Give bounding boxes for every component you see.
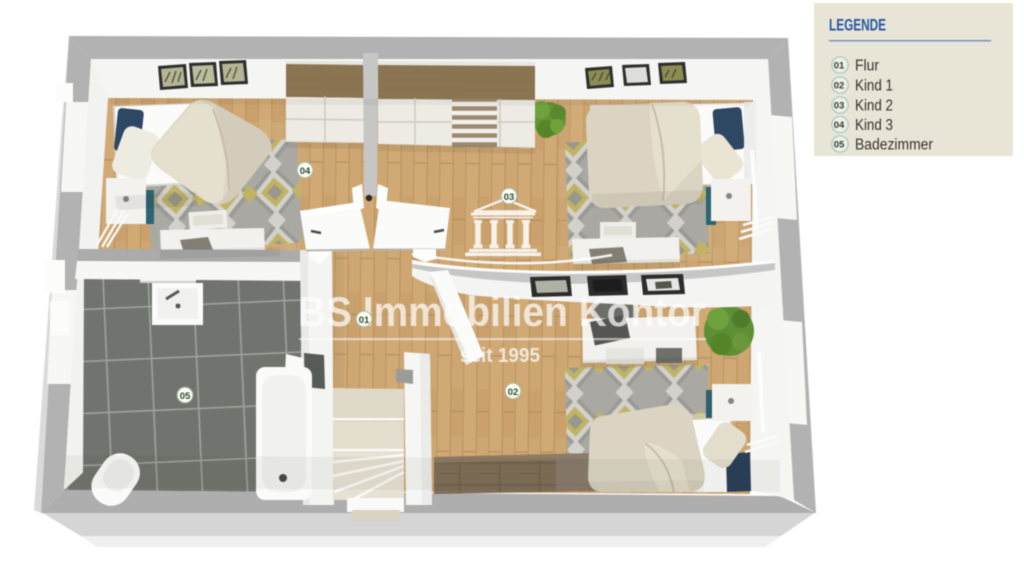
svg-text:05: 05 xyxy=(834,140,845,151)
svg-text:BS Immobilien Kontor: BS Immobilien Kontor xyxy=(298,288,706,335)
svg-text:Kind 3: Kind 3 xyxy=(855,117,893,134)
svg-text:Badezimmer: Badezimmer xyxy=(855,137,933,154)
svg-text:03: 03 xyxy=(504,192,515,203)
svg-text:02: 02 xyxy=(834,81,845,92)
svg-text:03: 03 xyxy=(834,101,845,112)
svg-text:01: 01 xyxy=(834,61,845,72)
svg-text:01: 01 xyxy=(359,315,370,326)
svg-text:Flur: Flur xyxy=(855,58,879,75)
svg-text:Kind 2: Kind 2 xyxy=(855,98,893,115)
svg-text:02: 02 xyxy=(508,387,519,398)
svg-text:04: 04 xyxy=(834,120,845,131)
svg-text:Kind 1: Kind 1 xyxy=(855,78,893,95)
svg-text:seit 1995: seit 1995 xyxy=(460,345,540,367)
svg-text:05: 05 xyxy=(180,391,191,402)
svg-text:LEGENDE: LEGENDE xyxy=(829,16,886,35)
svg-text:04: 04 xyxy=(300,166,311,177)
